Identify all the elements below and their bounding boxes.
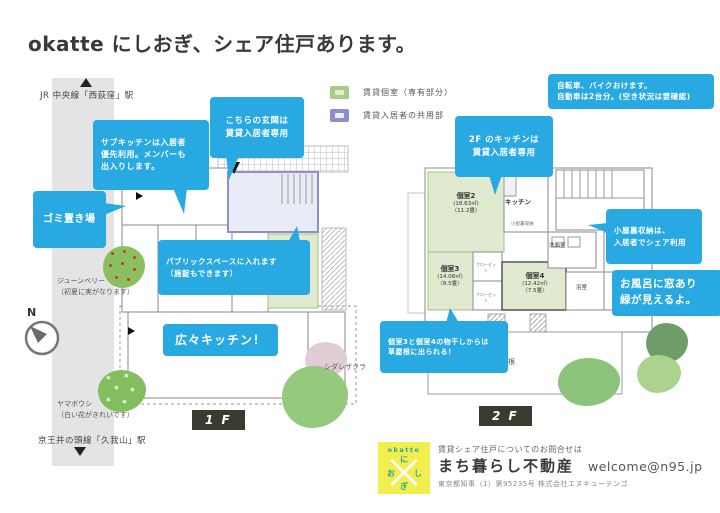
yamaboushi-note: ヤマボウシ （白い花がきれいです） (57, 399, 134, 420)
callout-public-space: パブリックスペースに入れます （施錠もできます） (158, 240, 310, 295)
legend-row-common: 賃貸入居者の共用部 (330, 109, 444, 122)
attic-storage-label: 小屋裏収納 (511, 221, 534, 227)
entrance-marker-icon (128, 327, 135, 335)
closet-label: クローゼット (475, 262, 497, 274)
shidarezakura-label: シダレザクラ (324, 362, 366, 373)
legend-label-common: 賃貸入居者の共用部 (363, 110, 444, 121)
juneberry-note: ジューンベリー （初夏に実がなります） (57, 276, 134, 297)
bath-label: 浴室 (576, 283, 587, 291)
compass-icon (22, 318, 62, 358)
garden-tree (637, 355, 681, 393)
callout-garbage: ゴミ置き場 (33, 191, 106, 248)
callout-attic: 小屋裏収納は、 入居者でシェア利用 (606, 209, 702, 264)
company-row: まち暮らし不動産welcome@n95.jp (438, 455, 703, 476)
legend-purple-swatch (330, 109, 349, 122)
callout-sub-kitchen: サブキッチンは入居者 優先利用。メンバーも 出入りします。 (93, 120, 209, 190)
license-text: 東京都知事（1）第95235号 株式会社エヌキューテンゴ (438, 479, 628, 489)
callout-parking: 自転車、バイクおけます。 自動車は2台分。(空き状況は要確認) (548, 74, 714, 109)
callout-roof-access: 個室3と個室4の物干しからは 草屋根に出られる！ (380, 321, 508, 373)
contact-email: welcome@n95.jp (588, 459, 702, 474)
room3-label: 個室3 (14.08㎡) 〈8.5畳〉 (424, 265, 476, 288)
callout-bath-window: お風呂に窓あり 緑が見えるよ。 (612, 270, 720, 316)
station-label-bottom: 京王井の頭線「久我山」駅 (38, 434, 146, 446)
kitchen-2f-label: キッチン (505, 196, 531, 206)
washroom-label: 洗面室 (549, 241, 566, 249)
callout-entrance-1f: こちらの玄関は 賃貸入居者専用 (210, 97, 304, 158)
logo-word: okatte (378, 446, 430, 454)
flyer: okatte にしおぎ、シェア住戸あります。 JR 中央線「西荻窪」駅 京王井の… (0, 0, 720, 513)
arrow-up-icon (80, 78, 92, 87)
legend-row-private: 賃貸個室（専有部分） (330, 86, 453, 99)
room2-label: 個室2 (18.63㎡) 〈11.2畳〉 (430, 192, 502, 215)
legend-green-swatch (330, 86, 349, 99)
floor-tag-1f: 1 F (192, 410, 245, 430)
arrow-down-icon (74, 447, 86, 456)
room4-label: 個室4 (12.42㎡) 〈7.5畳〉 (504, 272, 566, 295)
company-name: まち暮らし不動産 (438, 457, 574, 475)
callout-kitchen-2f: 2F のキッチンは 賃貸入居者専用 (455, 116, 553, 177)
legend-label-private: 賃貸個室（専有部分） (363, 87, 453, 98)
callout-kitchen-1f: 広々キッチン！ (163, 324, 278, 356)
entrance-marker-icon (136, 192, 143, 200)
okatte-logo: okatte に お し ぎ (378, 442, 430, 494)
inquiry-text: 賃貸シェア住戸についてのお問合せは (438, 444, 582, 455)
closet-label: クローゼット (475, 292, 497, 304)
page-title: okatte にしおぎ、シェア住戸あります。 (28, 28, 416, 57)
station-label-top: JR 中央線「西荻窪」駅 (40, 89, 134, 101)
floor-tag-2f: 2 F (479, 406, 532, 426)
garden-tree (282, 366, 348, 428)
